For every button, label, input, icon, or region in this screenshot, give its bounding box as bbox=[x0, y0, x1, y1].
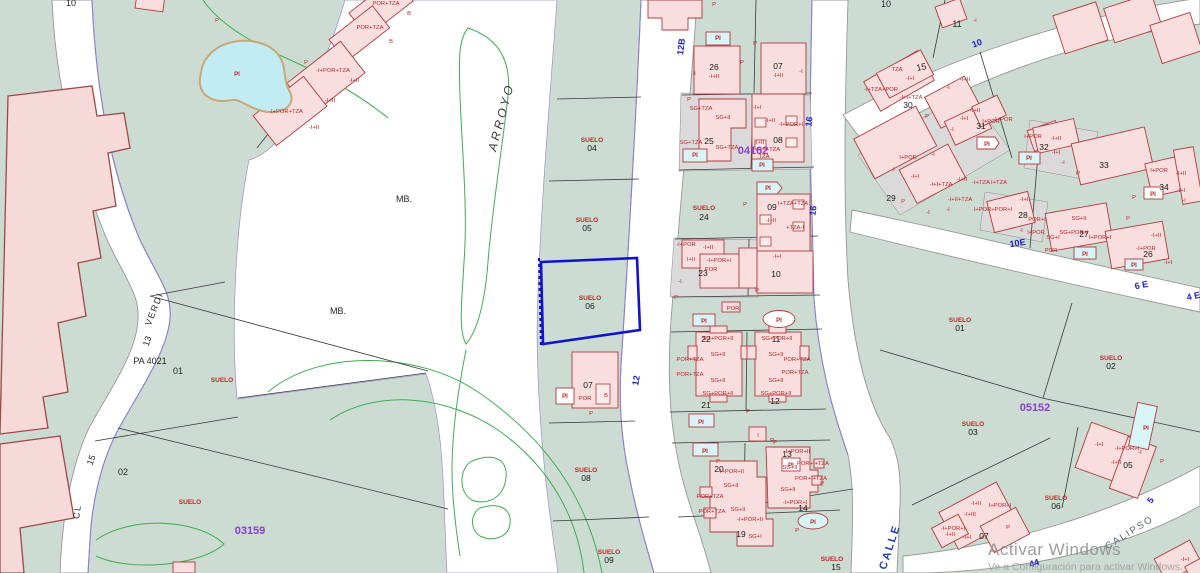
map-label: POR+TZA bbox=[782, 370, 809, 376]
map-label: SG+II bbox=[711, 352, 726, 358]
map-label: SG+TZA bbox=[680, 140, 703, 146]
map-label: SG+POR+II bbox=[762, 336, 793, 342]
map-label: -I+II bbox=[971, 501, 982, 507]
map-label: SG+II bbox=[769, 378, 784, 384]
map-label: 15 bbox=[831, 562, 841, 572]
map-label: -I bbox=[946, 207, 950, 213]
map-label: -I+II bbox=[703, 245, 714, 251]
map-label: POR bbox=[1045, 248, 1058, 254]
pool-label: PI bbox=[1143, 426, 1149, 432]
street-number: 12B bbox=[675, 37, 687, 55]
pool-label: PI bbox=[765, 186, 771, 192]
map-label: -I+POR bbox=[1136, 246, 1156, 252]
map-label: POR+TZA bbox=[357, 25, 384, 31]
map-label: I+POR bbox=[899, 155, 917, 161]
map-label: -I+II bbox=[970, 108, 981, 114]
map-label: -I bbox=[946, 85, 950, 91]
map-label: P bbox=[746, 409, 750, 415]
map-label: P bbox=[773, 440, 777, 446]
windows-activation-watermark-line2: Ve a Configuración para activar Windows. bbox=[988, 561, 1183, 573]
map-label: -I bbox=[926, 210, 930, 216]
map-label: -I bbox=[950, 127, 954, 133]
map-label: SG+POR+II bbox=[703, 336, 734, 342]
pool-label: PI bbox=[1150, 192, 1156, 198]
map-label: -I+I bbox=[911, 174, 920, 180]
map-label: SUELO bbox=[693, 205, 715, 212]
map-label: -I+POR+TZA bbox=[269, 109, 303, 115]
map-label: P bbox=[753, 41, 757, 47]
map-label: 12 bbox=[770, 396, 780, 406]
map-label: 10 bbox=[771, 269, 781, 279]
map-label: -I+II bbox=[773, 73, 784, 79]
map-label: I+TZA bbox=[991, 180, 1007, 186]
map-label: -I+II bbox=[957, 177, 968, 183]
map-label: SG+II bbox=[1072, 216, 1087, 222]
map-label: B bbox=[389, 39, 393, 45]
map-label: I+TZA+TZA bbox=[778, 201, 808, 207]
map-label: P bbox=[674, 295, 678, 301]
pool-label: PI bbox=[1026, 156, 1032, 162]
map-label: 01 bbox=[955, 323, 965, 333]
map-label: P bbox=[743, 202, 747, 208]
map-label: POR+TZA bbox=[697, 494, 724, 500]
landuse-code: MB. bbox=[396, 194, 412, 204]
parcel-background bbox=[0, 0, 1200, 573]
pool-label: PI bbox=[701, 319, 707, 325]
map-label: 25 bbox=[704, 136, 714, 146]
map-label: 19 bbox=[736, 529, 746, 539]
windows-activation-watermark: Activar Windows bbox=[988, 540, 1121, 560]
map-label: 07 bbox=[773, 61, 783, 71]
map-label: I+POR bbox=[1024, 134, 1042, 140]
landuse-code: MB. bbox=[330, 306, 346, 316]
map-label: POR+I bbox=[1028, 217, 1046, 223]
map-label: POR bbox=[705, 267, 718, 273]
map-canvas[interactable]: ARROYOVERDICLCALLECALIPSO12B161612441010… bbox=[0, 0, 1200, 573]
street-number: 16 bbox=[803, 116, 814, 127]
map-label: -I+I bbox=[773, 254, 782, 260]
map-label: P bbox=[820, 481, 824, 487]
map-label: P bbox=[1126, 216, 1130, 222]
map-label: 04 bbox=[587, 143, 597, 153]
pool-label: PI bbox=[698, 420, 704, 426]
map-label: I+II bbox=[687, 257, 696, 263]
map-label: 08 bbox=[581, 473, 591, 483]
map-label: SG+POR+I bbox=[1059, 230, 1089, 236]
map-label: 06 bbox=[585, 301, 595, 311]
map-label: SG+II bbox=[731, 507, 746, 513]
map-label: P bbox=[901, 199, 905, 205]
map-label: -I+II bbox=[945, 532, 956, 538]
map-label: P bbox=[795, 528, 799, 534]
map-label: POR+TZA bbox=[373, 1, 400, 7]
map-label: POR+TZA bbox=[677, 372, 704, 378]
street-number: 15 bbox=[915, 61, 927, 73]
map-label: -I bbox=[678, 279, 682, 285]
pool-label: PI bbox=[1131, 263, 1137, 269]
map-label: I+POR+I bbox=[989, 503, 1012, 509]
map-label: SG+II bbox=[781, 487, 796, 493]
map-label: P bbox=[215, 18, 219, 24]
map-label: P bbox=[304, 60, 308, 66]
map-label: 09 bbox=[767, 202, 777, 212]
map-label: SUELO bbox=[211, 377, 233, 384]
map-label: SG+II bbox=[724, 483, 739, 489]
map-label: I+POR bbox=[1150, 168, 1168, 174]
map-label: -I+POR+II bbox=[737, 517, 763, 523]
pool-label: PI bbox=[759, 163, 765, 169]
map-label: -I bbox=[692, 71, 696, 77]
map-label: I+POR+I bbox=[1089, 235, 1112, 241]
map-label: P bbox=[687, 97, 691, 103]
map-label: -I bbox=[891, 167, 895, 173]
zone-code: 05152 bbox=[1020, 402, 1051, 414]
map-label: I+POR+POR+I bbox=[974, 207, 1013, 213]
map-label: P bbox=[1160, 459, 1164, 465]
map-label: -I+II bbox=[1020, 197, 1031, 203]
map-label: I+POR bbox=[982, 119, 1000, 125]
map-label: -I bbox=[931, 152, 935, 158]
map-label: -I+TZA bbox=[972, 180, 990, 186]
map-label: 32 bbox=[1039, 142, 1049, 152]
parcel-number: 11 bbox=[952, 19, 961, 29]
map-label: -I+II bbox=[309, 125, 320, 131]
map-label: P bbox=[740, 60, 744, 66]
street-name-cl: CL bbox=[71, 504, 83, 520]
map-label: SUELO bbox=[179, 499, 201, 506]
map-label: -I+III bbox=[964, 512, 976, 518]
map-label: -I+II bbox=[765, 118, 776, 124]
map-label: 33 bbox=[1099, 160, 1109, 170]
map-label: -I+II bbox=[709, 74, 720, 80]
map-label: POR bbox=[579, 396, 592, 402]
map-label: -I+II bbox=[1111, 460, 1122, 466]
map-label: -I+I+TZA bbox=[930, 182, 953, 188]
map-label: 24 bbox=[699, 212, 709, 222]
map-label: P bbox=[1076, 171, 1080, 177]
map-label: -I+I bbox=[1052, 150, 1061, 156]
map-label: POR+TZA bbox=[784, 357, 811, 363]
map-label: B bbox=[604, 393, 608, 399]
zone-code: 03159 bbox=[235, 525, 266, 537]
map-label: P bbox=[589, 411, 593, 417]
map-label: P bbox=[925, 114, 929, 120]
map-label: 02 bbox=[1106, 361, 1116, 371]
map-label: -I+II bbox=[349, 78, 360, 84]
map-label: SG+II bbox=[769, 352, 784, 358]
map-label: 07 bbox=[583, 380, 593, 390]
map-label: -I+II bbox=[1151, 233, 1162, 239]
map-label: -I+POR+I bbox=[783, 500, 808, 506]
map-label: 03 bbox=[968, 427, 978, 437]
map-label: SG+I bbox=[1046, 235, 1060, 241]
map-label: SG+TZA bbox=[716, 145, 739, 151]
pool-label: PI bbox=[715, 36, 721, 42]
map-label: 05 bbox=[582, 223, 592, 233]
map-label: 06 bbox=[1051, 501, 1061, 511]
map-label: 05 bbox=[1123, 460, 1133, 470]
map-label: TZA bbox=[892, 67, 903, 73]
map-label: -I+I bbox=[960, 116, 969, 122]
map-label: -I+I+TZA bbox=[900, 95, 923, 101]
parcel-number: 10 bbox=[881, 0, 891, 9]
map-label: -I+II bbox=[1176, 171, 1187, 177]
street-number: 16 bbox=[807, 205, 818, 216]
map-label: P bbox=[712, 2, 716, 8]
map-label: -I+II bbox=[1051, 136, 1062, 142]
map-label: -I+POR+I bbox=[1115, 446, 1140, 452]
map-label: -I+II bbox=[766, 218, 777, 224]
map-label: SG+I bbox=[748, 534, 762, 540]
map-label: P bbox=[716, 459, 720, 465]
pool-label: PI bbox=[234, 72, 240, 78]
map-label: 09 bbox=[604, 555, 614, 565]
pool-label: PI bbox=[984, 142, 990, 148]
pool-label: PI bbox=[788, 463, 794, 469]
map-label: -I+POR bbox=[676, 242, 696, 248]
map-label: 30 bbox=[903, 100, 913, 110]
street-number: 12 bbox=[630, 375, 642, 387]
map-label: -I bbox=[1182, 198, 1186, 204]
map-label: P bbox=[755, 288, 759, 294]
map-label: SG+II bbox=[716, 115, 731, 121]
parcel-number: 02 bbox=[118, 467, 128, 477]
map-label: 08 bbox=[773, 135, 783, 145]
map-label: +TZA bbox=[766, 147, 780, 153]
map-label: POR+I+TZA bbox=[797, 461, 829, 467]
map-label: -I+II bbox=[325, 98, 336, 104]
map-label: -I+POR+TZA bbox=[316, 68, 350, 74]
map-label: -I+POR+II bbox=[784, 449, 810, 455]
plan-code: PA 4021 bbox=[133, 356, 166, 366]
map-label: SG+II bbox=[711, 378, 726, 384]
map-label: -I+II bbox=[960, 77, 971, 83]
map-label: -I bbox=[1138, 450, 1142, 456]
parcel-number: 10 bbox=[66, 0, 76, 8]
map-label: POR+TZA bbox=[677, 357, 704, 363]
map-label: +TZA-I bbox=[786, 225, 804, 231]
map-label: -I bbox=[973, 18, 977, 24]
map-label: POR+TZA bbox=[699, 509, 726, 515]
pool-label: PI bbox=[1082, 252, 1088, 258]
map-label: P bbox=[1132, 195, 1136, 201]
map-label: -I+POR+II bbox=[718, 469, 744, 475]
pool-label: PI bbox=[562, 394, 568, 400]
map-label: SG+POR+II bbox=[703, 391, 734, 397]
pool-label: PI bbox=[692, 153, 698, 159]
map-label: 28 bbox=[1018, 210, 1028, 220]
map-label: B bbox=[407, 11, 411, 17]
parcel-number: 01 bbox=[173, 366, 183, 376]
pool-label: PI bbox=[702, 449, 708, 455]
map-label: -I bbox=[1061, 160, 1065, 166]
map-label: 29 bbox=[886, 193, 896, 203]
pool-label: PI bbox=[776, 318, 782, 324]
map-label: -I+II+TZA bbox=[948, 197, 973, 203]
map-label: P bbox=[1006, 525, 1010, 531]
map-label: -I+I bbox=[753, 105, 762, 111]
map-label: -I+I bbox=[1177, 188, 1186, 194]
map-label: 21 bbox=[701, 400, 711, 410]
map-label: -I+II bbox=[754, 140, 765, 146]
map-label: -I bbox=[1019, 228, 1023, 234]
map-label: -I+TZA+POR bbox=[864, 87, 898, 93]
pool-label: PI bbox=[810, 520, 816, 526]
map-label: SG+POR+II bbox=[761, 391, 792, 397]
map-label: 34 bbox=[1159, 182, 1169, 192]
map-label: TZA bbox=[759, 154, 770, 160]
map-label: I+POR bbox=[1027, 230, 1045, 236]
map-label: -I bbox=[799, 69, 803, 75]
map-label: -I+POR+I bbox=[707, 258, 732, 264]
map-label: -I+POR+I bbox=[779, 122, 804, 128]
map-label: -I+I bbox=[906, 76, 915, 82]
map-label: POR bbox=[727, 306, 740, 312]
map-label: -I+I bbox=[1164, 260, 1173, 266]
map-label: SG+TZA bbox=[690, 106, 713, 112]
map-label: -I+I bbox=[963, 535, 972, 541]
map-label: -I+I bbox=[1095, 442, 1104, 448]
map-label: 26 bbox=[709, 62, 719, 72]
